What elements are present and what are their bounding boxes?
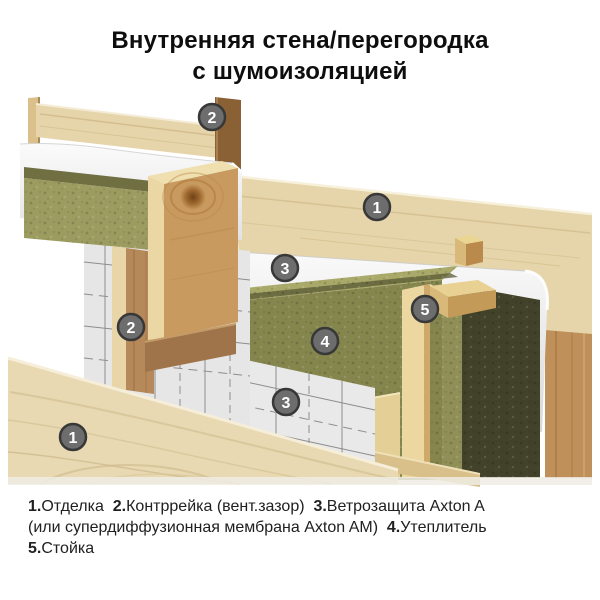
callout-badge-4-insulation: 4 [312, 328, 338, 354]
screenshot-root: 21352431 Внутренняя стена/перегородка с … [0, 0, 600, 600]
legend-line: (или супердиффузионная мембрана Axton AM… [28, 517, 584, 538]
svg-text:3: 3 [282, 395, 291, 412]
diagram-title-line2: с шумоизоляцией [0, 56, 600, 87]
insulation-block-left [24, 167, 152, 250]
render-bottom-shadow [8, 477, 592, 485]
callout-badge-2-counter-batten: 2 [118, 314, 144, 340]
callout-badge-3-wind-protection-membrane: 3 [273, 389, 299, 415]
callout-badge-1-finish-board: 1 [60, 424, 86, 450]
legend: 1.Отделка 2.Контррейка (вент.зазор) 3.Ве… [28, 496, 584, 559]
callout-badge-1-finish-board: 1 [364, 194, 390, 220]
stud-with-knot [148, 161, 238, 340]
svg-text:2: 2 [127, 320, 136, 337]
counter-batten-small-right [455, 235, 483, 266]
svg-text:1: 1 [69, 430, 78, 447]
callout-badge-3-wind-protection-membrane: 3 [272, 255, 298, 281]
legend-line: 5.Стойка [28, 538, 584, 559]
callout-badge-2-counter-batten: 2 [199, 104, 225, 130]
callout-badge-5-stud: 5 [412, 296, 438, 322]
legend-line: 1.Отделка 2.Контррейка (вент.зазор) 3.Ве… [28, 496, 584, 517]
diagram-title-line1: Внутренняя стена/перегородка [0, 25, 600, 56]
svg-text:3: 3 [281, 261, 290, 278]
diagram-title: Внутренняя стена/перегородка с шумоизоля… [0, 25, 600, 87]
svg-text:5: 5 [421, 302, 430, 319]
svg-text:2: 2 [208, 110, 217, 127]
svg-text:4: 4 [321, 334, 330, 351]
svg-text:1: 1 [373, 200, 382, 217]
